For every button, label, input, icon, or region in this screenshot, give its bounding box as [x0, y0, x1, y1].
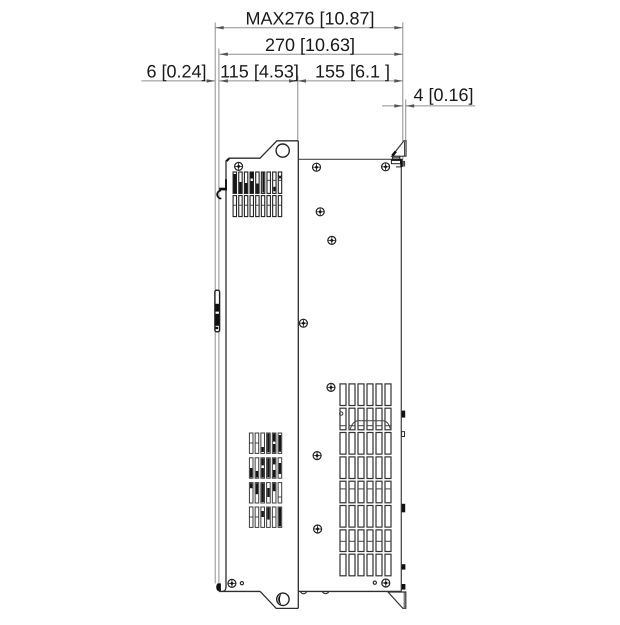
svg-text:115 [4.53]: 115 [4.53]: [220, 61, 299, 81]
svg-text:155 [6.1 ]: 155 [6.1 ]: [315, 61, 390, 81]
svg-text:MAX276 [10.87]: MAX276 [10.87]: [245, 9, 374, 29]
svg-text:270 [10.63]: 270 [10.63]: [265, 35, 355, 55]
svg-text:6 [0.24]: 6 [0.24]: [146, 61, 206, 81]
svg-text:4 [0.16]: 4 [0.16]: [414, 85, 474, 105]
